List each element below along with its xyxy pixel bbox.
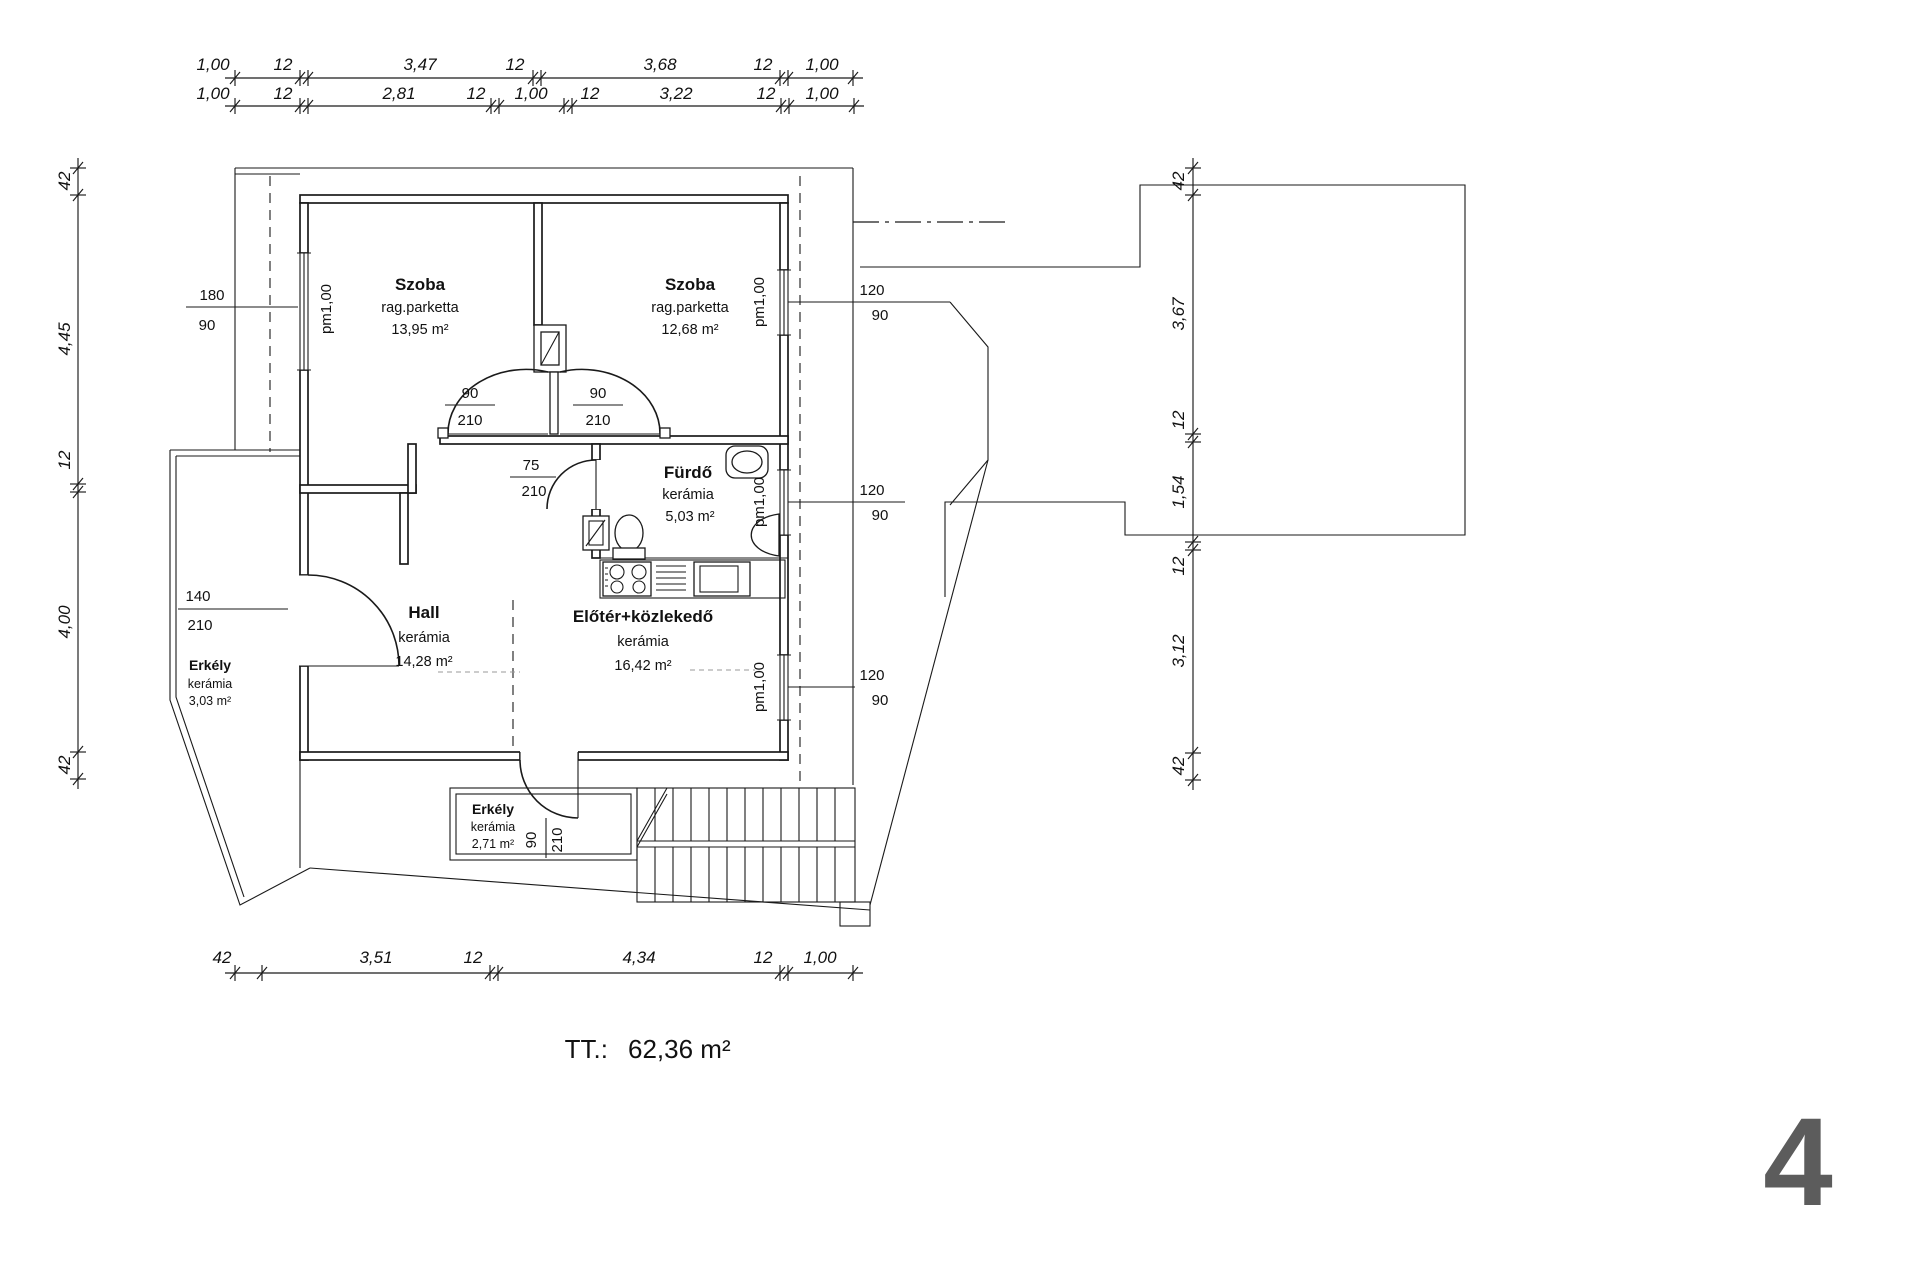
toilet-icon	[613, 515, 645, 559]
tag-w: 75	[523, 457, 540, 474]
wall-furdo-left-a	[592, 444, 600, 460]
room-name: Erkély	[189, 657, 231, 673]
tag-w: 120	[859, 667, 884, 684]
tag-parapet: pm1,00	[751, 277, 768, 327]
door-entry-90	[520, 751, 578, 818]
room-name: Fürdő	[664, 463, 712, 482]
dim-label: 42	[1169, 171, 1188, 190]
scan-artifacts	[438, 670, 755, 672]
dim-label: 12	[1169, 410, 1188, 429]
neighbor-bay	[950, 302, 988, 505]
dim-label: 42	[213, 948, 232, 967]
dim-right-col	[1185, 158, 1201, 790]
dim-label: 1,00	[803, 948, 837, 967]
dim-label: 12	[754, 948, 773, 967]
dim-label: 3,51	[359, 948, 392, 967]
room-finish: kerámia	[471, 820, 516, 834]
floorplan-page: 1,00 12 3,47 12 3,68 12 1,00 1,00 12 2,8…	[0, 0, 1920, 1280]
total-area-value: 62,36 m²	[628, 1034, 731, 1064]
total-area: TT.: 62,36 m²	[565, 1034, 731, 1064]
dim-label: 4,45	[55, 322, 74, 356]
wall-bottom-right	[578, 752, 788, 760]
dim-label: 1,00	[805, 84, 839, 103]
dim-label: 12	[274, 55, 293, 74]
tag-parapet: pm1,00	[751, 477, 768, 527]
door-arc-entry	[520, 760, 578, 818]
room-label-furdo: Fürdő kerámia 5,03 m²	[662, 463, 715, 525]
dim-label: 1,00	[514, 84, 548, 103]
dim-label: 42	[55, 171, 74, 190]
dim-label: 3,68	[643, 55, 677, 74]
neighbor-outline	[788, 185, 1465, 905]
room-finish: kerámia	[617, 634, 670, 650]
ground-line	[310, 868, 870, 910]
room-area: 5,03 m²	[665, 509, 714, 525]
door-erkely-left-140	[299, 575, 399, 666]
dim-label: 42	[55, 755, 74, 774]
tag-w: 120	[859, 282, 884, 299]
room-name: Erkély	[472, 801, 514, 817]
page-number: 4	[1763, 1093, 1833, 1232]
kitchen	[600, 560, 785, 598]
dim-label: 12	[55, 450, 74, 469]
floor-plan-drawing: 1,00 12 3,47 12 3,68 12 1,00 1,00 12 2,8…	[0, 0, 1920, 1280]
room-name: Előtér+közlekedő	[573, 607, 713, 626]
door-furdo-75	[547, 460, 601, 509]
dim-label: 3,12	[1169, 634, 1188, 668]
wall-right-3	[780, 535, 788, 655]
washbasin-icon	[726, 446, 768, 478]
room-finish: rag.parketta	[651, 300, 729, 316]
wall-between-szoba	[534, 203, 542, 325]
room-finish: kerámia	[188, 677, 233, 691]
dim-label: 42	[1169, 756, 1188, 775]
door-arc-erkely-left	[308, 575, 399, 666]
drainboard-icon	[656, 566, 686, 590]
room-label-eloter: Előtér+közlekedő kerámia 16,42 m²	[573, 607, 713, 674]
door-post	[550, 372, 558, 434]
tag-w: 120	[859, 482, 884, 499]
room-name: Hall	[408, 603, 439, 622]
dim-label: 3,47	[403, 55, 437, 74]
room-label-hall: Hall kerámia 14,28 m²	[395, 603, 452, 670]
tag-door-szoba1: 90 210	[445, 385, 495, 429]
dim-label: 12	[464, 948, 483, 967]
room-area: 13,95 m²	[391, 322, 448, 338]
room-finish: kerámia	[662, 487, 715, 503]
tag-h: 90	[199, 317, 216, 334]
wall-hall-top	[300, 485, 416, 493]
tag-h: 210	[549, 827, 566, 852]
dim-label: 12	[274, 84, 293, 103]
tag-h: 90	[872, 507, 889, 524]
dim-label: 12	[506, 55, 525, 74]
wall-left-lower	[300, 666, 308, 760]
wall-right-2	[780, 335, 788, 470]
room-name: Szoba	[665, 275, 716, 294]
duct-shaft-icon	[583, 516, 609, 550]
wall-left-mid	[300, 370, 308, 575]
dim-left-col	[70, 158, 86, 789]
chimney	[534, 325, 566, 372]
tag-door-erkely-left: 140 210	[178, 588, 288, 634]
stove-icon	[603, 562, 651, 596]
room-label-erkely-bottom: Erkély kerámia 2,71 m²	[471, 801, 516, 851]
wall-left-upper	[300, 203, 308, 253]
tag-door-szoba2: 90 210	[573, 385, 623, 429]
tag-h: 210	[585, 412, 610, 429]
tag-parapet: pm1,00	[751, 662, 768, 712]
room-area: 3,03 m²	[189, 694, 231, 708]
tag-w: 180	[199, 287, 224, 304]
wall-top	[300, 195, 788, 203]
room-area: 12,68 m²	[661, 322, 718, 338]
dim-label: 2,81	[381, 84, 415, 103]
room-area: 2,71 m²	[472, 837, 514, 851]
dim-label: 12	[467, 84, 486, 103]
window-left-180	[297, 253, 311, 370]
tag-w: 90	[523, 832, 540, 849]
tag-h: 90	[872, 692, 889, 709]
room-area: 14,28 m²	[395, 654, 452, 670]
wall-hall-right	[400, 493, 408, 564]
dim-label: 12	[757, 84, 776, 103]
stairs	[637, 788, 870, 926]
sink-icon	[694, 562, 750, 596]
dim-bottom-row	[225, 965, 863, 981]
dim-label: 4,34	[622, 948, 655, 967]
tag-parapet: pm1,00	[318, 284, 335, 334]
total-area-label: TT.:	[565, 1034, 608, 1064]
stair-break-line	[637, 788, 667, 847]
dim-labels: 1,00 12 3,47 12 3,68 12 1,00 1,00 12 2,8…	[55, 55, 1188, 967]
room-finish: kerámia	[398, 630, 451, 646]
tag-w: 90	[462, 385, 479, 402]
tag-w: 140	[185, 588, 210, 605]
dim-label: 1,00	[805, 55, 839, 74]
room-finish: rag.parketta	[381, 300, 459, 316]
tag-h: 210	[521, 483, 546, 500]
dim-label: 1,54	[1169, 475, 1188, 508]
room-label-szoba1: Szoba rag.parketta 13,95 m²	[381, 275, 459, 338]
tag-h: 210	[457, 412, 482, 429]
wall-jog	[408, 444, 416, 493]
door-arc-furdo	[547, 460, 596, 509]
tag-h: 210	[187, 617, 212, 634]
dim-label: 3,22	[659, 84, 693, 103]
tag-door-erkely-bottom: 90 210	[523, 827, 566, 852]
dim-label: 1,00	[196, 84, 230, 103]
tag-w: 90	[590, 385, 607, 402]
room-label-szoba2: Szoba rag.parketta 12,68 m²	[651, 275, 729, 338]
neighbor-diagonal	[870, 460, 988, 905]
room-label-erkely-left: Erkély kerámia 3,03 m²	[188, 657, 233, 708]
tag-window-left: 180 90 pm1,00	[186, 284, 335, 334]
wall-bottom-left	[300, 752, 520, 760]
dim-label: 12	[581, 84, 600, 103]
wall-right-1	[780, 203, 788, 270]
dim-label: 1,00	[196, 55, 230, 74]
room-area: 16,42 m²	[614, 658, 671, 674]
dim-label: 12	[1169, 556, 1188, 575]
tag-h: 90	[872, 307, 889, 324]
wall-furdo-top	[440, 436, 788, 444]
dim-label: 4,00	[55, 605, 74, 639]
dim-label: 3,67	[1169, 297, 1188, 331]
room-name: Szoba	[395, 275, 446, 294]
stair-step	[840, 902, 870, 926]
dim-label: 12	[754, 55, 773, 74]
